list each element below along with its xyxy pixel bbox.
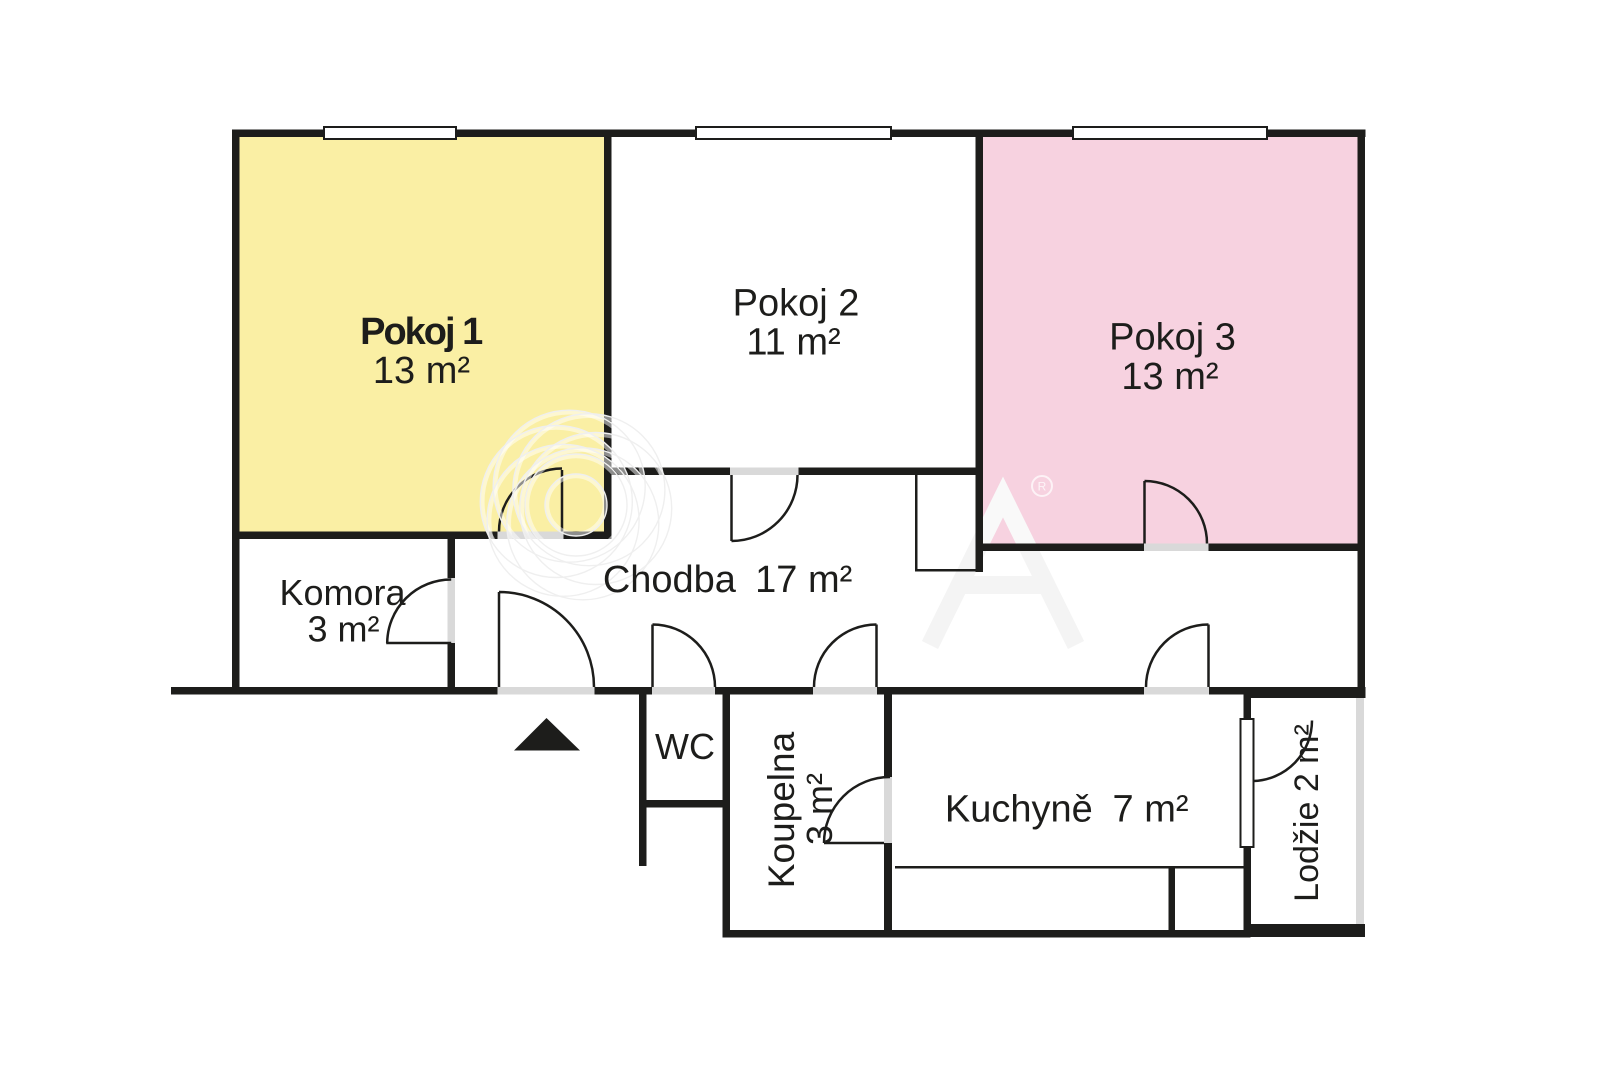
svg-text:Pokoj 3: Pokoj 3 — [1109, 317, 1236, 359]
svg-text:7 m²: 7 m² — [1113, 789, 1189, 831]
svg-text:13 m²: 13 m² — [373, 350, 470, 392]
svg-text:17 m²: 17 m² — [755, 559, 852, 601]
svg-text:Komora: Komora — [279, 572, 406, 613]
svg-text:3 m²: 3 m² — [799, 773, 840, 845]
svg-text:Koupelna: Koupelna — [761, 731, 802, 888]
svg-text:13 m²: 13 m² — [1121, 356, 1218, 398]
svg-text:11 m²: 11 m² — [746, 322, 840, 364]
svg-text:R: R — [1038, 480, 1047, 494]
svg-text:Pokoj 2: Pokoj 2 — [733, 283, 860, 325]
svg-text:Kuchyně: Kuchyně — [945, 789, 1093, 831]
svg-text:Pokoj 1: Pokoj 1 — [360, 311, 483, 353]
svg-text:WC: WC — [655, 726, 715, 767]
svg-text:Lodžie 2 m²: Lodžie 2 m² — [1288, 724, 1326, 902]
svg-text:Chodba: Chodba — [603, 559, 737, 601]
svg-text:3 m²: 3 m² — [308, 609, 380, 650]
